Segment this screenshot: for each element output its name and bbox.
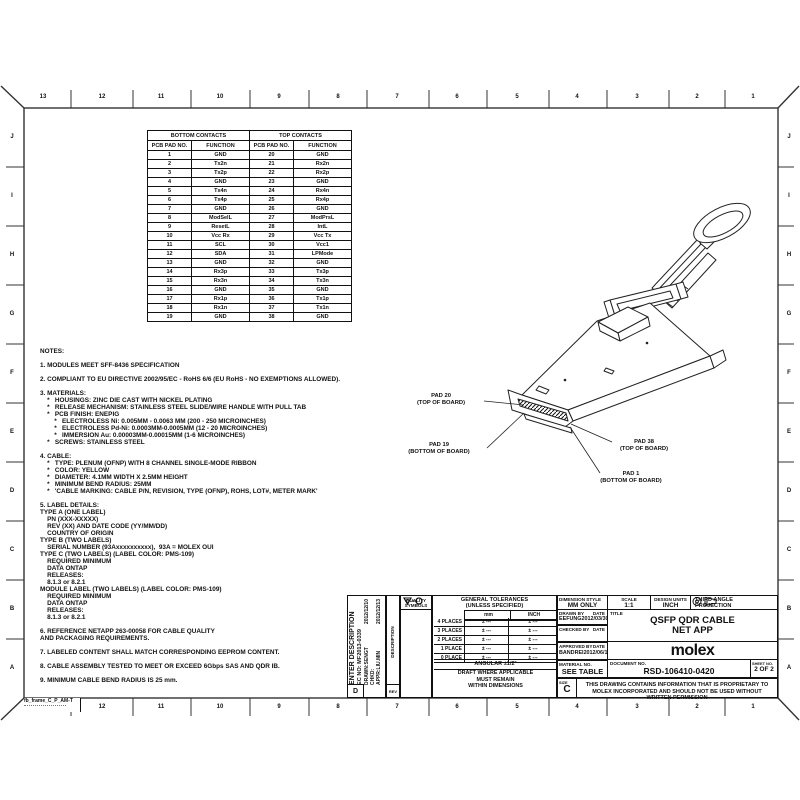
- tolerance-row: 2 PLACES± ---± ---: [434, 636, 557, 645]
- contacts-group-header: TOP CONTACTS: [250, 131, 352, 141]
- zone-label: 5: [515, 704, 518, 710]
- zone-label: 8: [336, 704, 339, 710]
- pad19-callout: PAD 19 (BOTTOM OF BOARD): [393, 442, 485, 456]
- zone-label: 12: [99, 94, 106, 100]
- checked-by-cell: CHECKED BY DATE: [557, 625, 608, 642]
- zone-label: I: [788, 193, 790, 199]
- zone-label: B: [787, 606, 791, 612]
- contacts-row: 17Rx1p36Tx1p: [148, 295, 352, 304]
- third-angle-projection-icon: [691, 596, 719, 607]
- tolerances-title-2: (UNLESS SPECIFIED): [433, 603, 556, 609]
- contacts-row: 3Tx2p22Rx2p: [148, 169, 352, 178]
- zone-label: F: [787, 370, 791, 376]
- contacts-row: 18Rx1n37Tx1n: [148, 304, 352, 313]
- zone-label: D: [10, 488, 14, 494]
- size-cell: SIZE C: [557, 678, 577, 698]
- zone-label: H: [787, 252, 791, 258]
- zone-label: 9: [277, 94, 280, 100]
- zone-label: 3: [635, 704, 638, 710]
- zone-label: E: [787, 429, 791, 435]
- body-hole: [564, 379, 567, 382]
- zone-label: 2: [695, 94, 698, 100]
- body-hole: [646, 342, 649, 345]
- drawn-by-cell: DRAWN BY DATE EEFUNG 2012/03/30: [557, 609, 608, 625]
- zone-label: B: [10, 606, 14, 612]
- zone-label: 6: [455, 94, 458, 100]
- contacts-row: 9ResetL28IntL: [148, 223, 352, 232]
- pad38-callout: PAD 38 (TOP OF BOARD): [598, 439, 690, 453]
- contacts-col-header: PCB PAD NO.: [148, 141, 192, 151]
- proprietary-cell: THIS DRAWING CONTAINS INFORMATION THAT I…: [576, 678, 778, 698]
- zone-label: C: [10, 547, 14, 553]
- approved-by-label: APPROVED BY: [559, 644, 592, 649]
- zone-label: 9: [277, 704, 280, 710]
- document-no-cell: DOCUMENT NO. RSD-106410-0420: [607, 659, 751, 678]
- checked-by-date-label: DATE: [593, 627, 605, 632]
- proprietary-text: THIS DRAWING CONTAINS INFORMATION THAT I…: [577, 679, 777, 702]
- document-no-value: RSD-106410-0420: [608, 666, 750, 676]
- zone-label: 4: [575, 704, 578, 710]
- revision-drawn-date: 2012/12/10: [364, 599, 370, 624]
- title-cell: TITLE QSFP QDR CABLE NET APP: [607, 609, 778, 642]
- zone-label: 2: [695, 704, 698, 710]
- contacts-row: 10Vcc Rx29Vcc Tx: [148, 232, 352, 241]
- zone-label: 10: [217, 704, 224, 710]
- description-column-label: DESCRIPTION: [390, 599, 400, 685]
- zone-label: 1: [751, 94, 754, 100]
- zone-label: 6: [455, 704, 458, 710]
- contacts-row: 13GND32GND: [148, 259, 352, 268]
- size-value: C: [558, 685, 576, 695]
- corner-note-fineprint: [24, 705, 66, 706]
- revision-strip: ENTER DESCRIPTION EC NO: MF2013-0339 DRA…: [347, 595, 386, 698]
- revision-appr-date: 2012/12/13: [376, 599, 382, 624]
- material-no-value: SEE TABLE: [558, 667, 607, 676]
- revision-appr: APPR:LIU.MIN: [376, 651, 382, 685]
- pcb-contacts-table: BOTTOM CONTACTSTOP CONTACTSPCB PAD NO.FU…: [147, 130, 352, 322]
- qsfp-connector-art: [508, 195, 756, 433]
- zone-label: A: [787, 665, 791, 671]
- tolerance-row: 1 PLACE± ---± ---: [434, 645, 557, 654]
- dimension-style-cell: DIMENSION STYLE MM ONLY: [557, 595, 608, 610]
- zone-label: C: [787, 547, 791, 553]
- zone-label: I: [11, 193, 13, 199]
- contacts-row: 11SCL30Vcc1: [148, 241, 352, 250]
- zone-label: 11: [158, 94, 164, 100]
- zone-label: 12: [99, 704, 106, 710]
- contacts-col-header: PCB PAD NO.: [250, 141, 294, 151]
- revision-rotated-text: ENTER DESCRIPTION EC NO: MF2013-0339 DRA…: [349, 599, 385, 685]
- scale-cell: SCALE 1:1: [607, 595, 651, 610]
- contacts-row: 8ModSelL27ModPrsL: [148, 214, 352, 223]
- contacts-row: 5Tx4n24Rx4n: [148, 187, 352, 196]
- approved-by-name: BANDREI: [559, 650, 584, 656]
- quality-symbol-icon: [401, 596, 425, 607]
- contacts-row: 2Tx2n21Rx2n: [148, 160, 352, 169]
- zone-label: A: [10, 665, 14, 671]
- zone-label: 7: [395, 704, 398, 710]
- rev-label-box: REV: [386, 684, 400, 698]
- contacts-row: 14Rx3p33Tx3p: [148, 268, 352, 277]
- zone-label: G: [10, 311, 15, 317]
- revision-description-column: DESCRIPTION: [386, 595, 400, 698]
- tolerance-row: 4 PLACES± ---± ---: [434, 618, 557, 627]
- tolerance-rows: 4 PLACES± ---± ---3 PLACES± ---± ---2 PL…: [434, 618, 557, 663]
- drawing-title-line2: NET APP: [608, 626, 777, 636]
- frame-corner-note: fb_frame_C_P_AM-T: [24, 698, 81, 712]
- sheet-no-cell: SHEET NO. 2 OF 2: [750, 659, 778, 678]
- pad20-callout: PAD 20 (TOP OF BOARD): [398, 393, 484, 407]
- contacts-row: 15Rx3n34Tx3n: [148, 277, 352, 286]
- quality-symbols-block: QUALITY SYMBOLS: [400, 595, 432, 698]
- contacts-row: 16GND35GND: [148, 286, 352, 295]
- frame-name-text: fb_frame_C_P_AM-T: [24, 698, 80, 704]
- zone-label: H: [10, 252, 14, 258]
- zone-label: G: [787, 311, 792, 317]
- projection-cell: THIRD ANGLE PROJECTION: [690, 595, 778, 610]
- contacts-row: 1GND20GND: [148, 151, 352, 160]
- zone-label: 8: [336, 94, 339, 100]
- zone-label: E: [10, 429, 14, 435]
- contacts-group-header: BOTTOM CONTACTS: [148, 131, 250, 141]
- zone-label: J: [10, 134, 13, 140]
- design-units-cell: DESIGN UNITS INCH: [650, 595, 691, 610]
- zone-label: 5: [515, 94, 518, 100]
- zone-label: 3: [635, 94, 638, 100]
- material-no-cell: MATERIAL NO. SEE TABLE: [557, 660, 608, 678]
- engineering-drawing-sheet: { "frame": { "top_columns": ["13","12","…: [0, 0, 800, 800]
- drawn-by-name: EEFUNG: [559, 616, 581, 622]
- zone-label: 11: [158, 704, 164, 710]
- angular-tolerance: ANGULAR ±1/2°: [434, 659, 557, 670]
- contacts-row: 6Tx4p25Rx4p: [148, 196, 352, 205]
- revision-ec-no: EC NO: MF2013-0339: [357, 599, 364, 685]
- drawn-by-date: 2012/03/30: [581, 616, 608, 622]
- tolerances-block: GENERAL TOLERANCES (UNLESS SPECIFIED) mm…: [432, 595, 557, 698]
- checked-by-label: CHECKED BY: [559, 627, 589, 632]
- molex-logo: molex: [671, 642, 715, 659]
- draft-note: DRAFT WHERE APPLICABLE MUST REMAIN WITHI…: [434, 670, 557, 690]
- contacts-col-header: FUNCTION: [294, 141, 352, 151]
- contacts-row: 19GND38GND: [148, 313, 352, 322]
- pad1-callout: PAD 1 (BOTTOM OF BOARD): [583, 471, 679, 485]
- zone-label: 10: [217, 94, 224, 100]
- pad1-leader: [570, 427, 600, 473]
- zone-label: D: [787, 488, 791, 494]
- pad19-leader: [487, 413, 524, 448]
- tolerance-row: 3 PLACES± ---± ---: [434, 627, 557, 636]
- zone-label: 7: [395, 94, 398, 100]
- design-units-value: INCH: [651, 602, 690, 609]
- dimension-style-value: MM ONLY: [558, 602, 607, 609]
- contacts-row: 4GND23GND: [148, 178, 352, 187]
- revision-description: ENTER DESCRIPTION: [349, 599, 357, 685]
- sheet-no-value: 2 OF 2: [751, 666, 777, 673]
- scale-value: 1:1: [608, 602, 650, 609]
- contacts-row: 12SDA31LPMode: [148, 250, 352, 259]
- revision-letter-box: D: [347, 684, 364, 698]
- logo-cell: molex: [607, 641, 778, 660]
- contacts-col-header: FUNCTION: [192, 141, 250, 151]
- zone-label: 4: [575, 94, 578, 100]
- approved-by-cell: APPROVED BY DATE BANDREI 2012/06/18: [557, 642, 608, 660]
- approved-by-date-label: DATE: [593, 644, 605, 649]
- zone-label: J: [787, 134, 790, 140]
- zone-label: 13: [40, 94, 47, 100]
- zone-label: F: [10, 370, 14, 376]
- contacts-row: 7GND26GND: [148, 205, 352, 214]
- zone-label: 1: [751, 704, 754, 710]
